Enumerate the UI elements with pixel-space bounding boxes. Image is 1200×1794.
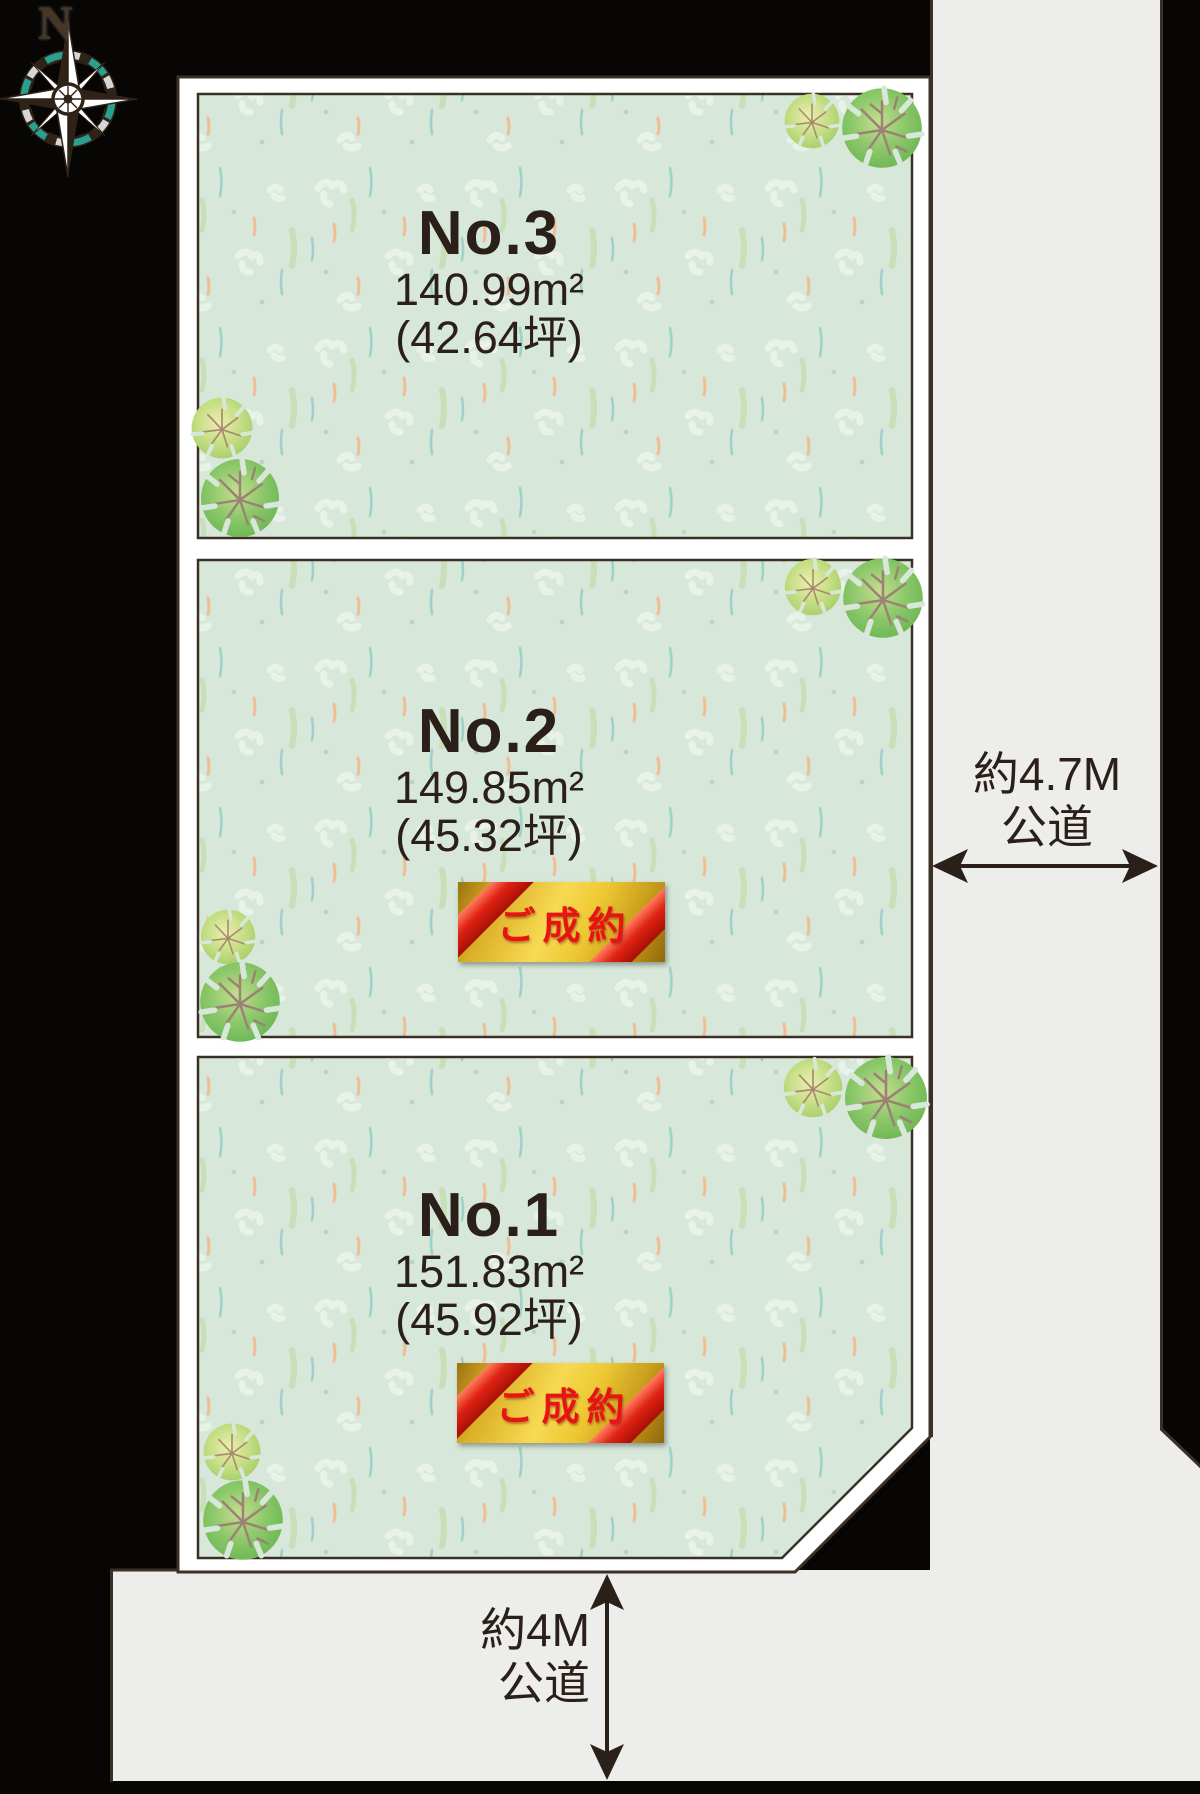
lot-no2-name: No.2 (254, 700, 724, 764)
lot-no1-tsubo: (45.92坪) (254, 1296, 724, 1344)
sold-banner-no1: ご成約 (457, 1363, 664, 1443)
lot-no2-tsubo: (45.32坪) (254, 812, 724, 860)
south-road-width: 約4M (290, 1604, 590, 1657)
label-overlay: N No.3 140.99m² (42.64坪) No.2 149.85m² (… (0, 0, 1200, 1794)
compass-north-label: N (38, 0, 73, 51)
east-road-width: 約4.7M (936, 748, 1158, 801)
lot-no3-tsubo: (42.64坪) (254, 314, 724, 362)
sold-banner-no2-text: ご成約 (490, 895, 632, 950)
lot-no2-label: No.2 149.85m² (45.32坪) (254, 700, 724, 860)
lot-no1-label: No.1 151.83m² (45.92坪) (254, 1184, 724, 1344)
lot-no1-name: No.1 (254, 1184, 724, 1248)
lot-no2-area: 149.85m² (254, 764, 724, 812)
lot-no3-area: 140.99m² (254, 266, 724, 314)
south-road-label: 約4M 公道 (290, 1604, 590, 1710)
south-road-type: 公道 (290, 1657, 590, 1710)
lot-no3-label: No.3 140.99m² (42.64坪) (254, 202, 724, 362)
sold-banner-no2: ご成約 (458, 882, 665, 962)
lot-no3-name: No.3 (254, 202, 724, 266)
lot-no1-area: 151.83m² (254, 1248, 724, 1296)
east-road-label: 約4.7M 公道 (936, 748, 1158, 854)
sold-banner-no1-text: ご成約 (489, 1376, 631, 1431)
lot-layout-diagram: N No.3 140.99m² (42.64坪) No.2 149.85m² (… (0, 0, 1200, 1794)
east-road-type: 公道 (936, 801, 1158, 854)
